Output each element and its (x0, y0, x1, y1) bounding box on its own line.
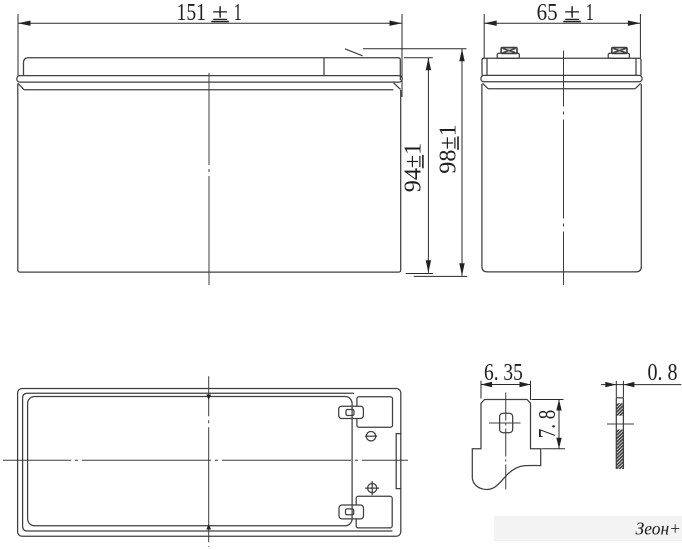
svg-text:0. 8: 0. 8 (648, 360, 678, 386)
svg-text:1: 1 (234, 0, 242, 26)
svg-text:151: 151 (177, 0, 207, 26)
svg-text:6. 35: 6. 35 (484, 360, 523, 386)
svg-text:7. 8: 7. 8 (535, 410, 561, 439)
svg-text:1: 1 (586, 0, 594, 26)
svg-text:65: 65 (537, 0, 558, 26)
svg-text:Зеон+: Зеон+ (636, 519, 681, 539)
